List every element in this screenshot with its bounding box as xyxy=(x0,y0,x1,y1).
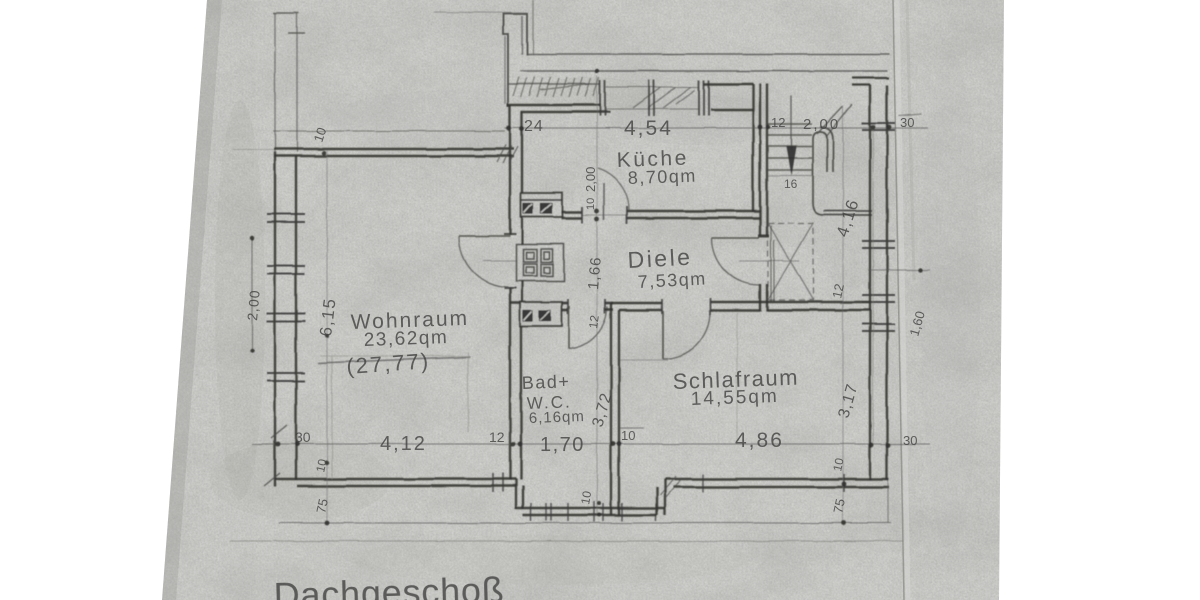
svg-text:6,16qm: 6,16qm xyxy=(529,408,586,427)
svg-text:14,55qm: 14,55qm xyxy=(690,386,779,410)
svg-text:10: 10 xyxy=(585,198,597,210)
svg-text:12: 12 xyxy=(489,429,505,445)
svg-text:30: 30 xyxy=(903,433,917,448)
svg-text:75: 75 xyxy=(313,497,331,514)
svg-text:4,12: 4,12 xyxy=(380,433,427,455)
svg-text:12: 12 xyxy=(586,314,602,329)
svg-text:8,70qm: 8,70qm xyxy=(627,166,697,188)
svg-text:12: 12 xyxy=(771,115,785,130)
svg-text:Dachgeschoß: Dachgeschoß xyxy=(273,569,505,600)
svg-text:Bad+: Bad+ xyxy=(521,371,570,393)
svg-text:7,53qm: 7,53qm xyxy=(637,268,707,292)
svg-text:10: 10 xyxy=(578,490,594,506)
svg-text:12: 12 xyxy=(829,282,847,299)
svg-text:2,00: 2,00 xyxy=(244,289,263,322)
svg-text:1,70: 1,70 xyxy=(540,434,585,456)
svg-text:4,54: 4,54 xyxy=(624,117,673,140)
svg-text:16: 16 xyxy=(784,177,798,191)
svg-text:10: 10 xyxy=(621,428,635,443)
svg-text:2,00: 2,00 xyxy=(803,116,840,133)
svg-text:30: 30 xyxy=(295,429,311,445)
svg-text:30: 30 xyxy=(900,115,914,130)
svg-text:1,66: 1,66 xyxy=(585,256,605,291)
svg-text:Diele: Diele xyxy=(627,244,693,273)
svg-text:24: 24 xyxy=(524,118,544,135)
svg-text:4,86: 4,86 xyxy=(735,429,784,452)
svg-text:23,62qm: 23,62qm xyxy=(363,327,448,351)
svg-text:75: 75 xyxy=(830,497,848,514)
svg-text:2,00: 2,00 xyxy=(583,167,598,192)
